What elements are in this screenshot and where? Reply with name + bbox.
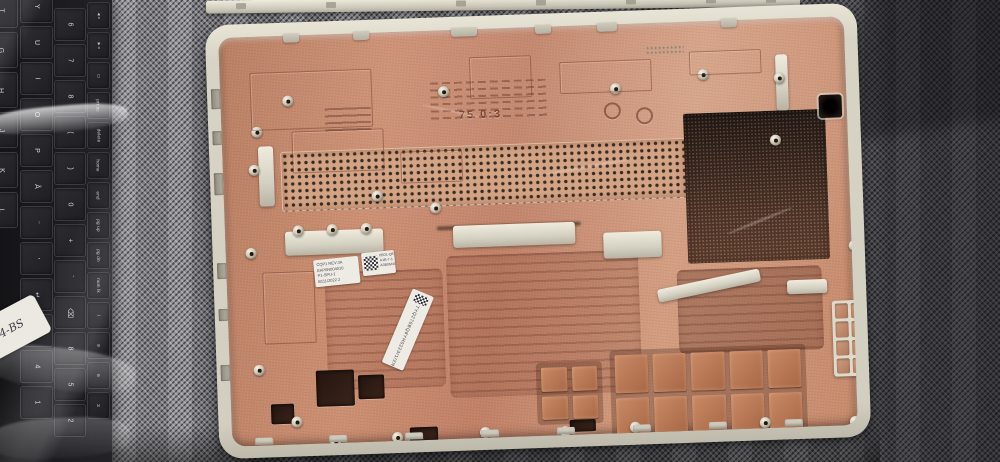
screw-boss (291, 416, 302, 427)
keyboard-key: J (0, 112, 18, 148)
grid-cell (835, 321, 848, 337)
rim-port-slot (212, 131, 221, 145)
key-legend: delete (96, 129, 101, 143)
screw-boss (857, 290, 858, 301)
key-legend: O (33, 112, 40, 117)
laptop-bottom-case: 75 0:3 CQP (205, 3, 872, 459)
rim-port-slot (211, 89, 221, 109)
grid-cell (851, 321, 858, 337)
silver-bracket (787, 279, 827, 294)
keyboard-key: O (20, 98, 53, 131)
keyboard-key: pg up (87, 212, 110, 239)
key-legend: / (96, 315, 101, 316)
screw-boss-mount (850, 416, 858, 427)
keyboard-key: 7 (54, 44, 86, 77)
screw-boss (254, 365, 265, 376)
key-legend: K (0, 168, 4, 173)
key-legend: ⌫ (66, 308, 74, 318)
keyboard-key: ´ (54, 260, 86, 293)
key-legend: ▭ (95, 73, 101, 78)
keyboard-key: G (0, 32, 18, 68)
screw-boss (849, 240, 858, 251)
keyboard-key: 2 (54, 404, 86, 437)
dark-cutout (316, 370, 355, 407)
keyboard-key: ⌫ (54, 296, 86, 329)
key-legend: ( (67, 131, 74, 133)
keyboard-key: I (20, 62, 53, 95)
key-legend: ' (33, 258, 40, 259)
recycle-mark-icon (636, 107, 654, 125)
key-legend: H (0, 87, 5, 92)
rim-clip (481, 429, 499, 437)
grid-cell (851, 339, 857, 355)
molded-rib (400, 150, 463, 184)
strip-notch (536, 0, 546, 6)
strip-notch (766, 0, 776, 3)
keyboard-key: ▭ (87, 62, 110, 89)
key-legend: pg dn (96, 249, 101, 262)
grid-cell (835, 303, 848, 319)
molded-rib (469, 55, 532, 99)
key-legend: ) (67, 167, 74, 169)
key-legend: 0 (67, 203, 74, 207)
key-legend: pg up (96, 219, 101, 232)
screw-boss (245, 248, 256, 259)
key-legend: 4 (33, 365, 40, 369)
keyboard-key: pg dn (87, 242, 110, 269)
keyboard-key: 9 (87, 332, 110, 359)
rim-clip (709, 422, 727, 430)
key-legend: 1 (33, 401, 40, 405)
strip-notch (456, 0, 466, 6)
keyboard-key: K (0, 152, 18, 188)
rim-tab (721, 18, 737, 28)
keyboard-key: ) (54, 152, 86, 185)
strip-notch (326, 2, 336, 8)
grid-cell (850, 303, 858, 319)
key-legend: P (33, 148, 40, 153)
sticker-part-number: CQP1 REV:3A EAP0N004010 P1-SPU-1 B111/20… (313, 256, 361, 288)
keyboard-key: 3 (87, 392, 110, 419)
grid-cell (571, 366, 597, 390)
keyboard-key: 8 (54, 80, 86, 113)
keyboard-key: 6 (87, 362, 110, 389)
rim-clip (785, 419, 803, 427)
grid-cell (572, 395, 598, 419)
rim-clip (557, 427, 575, 435)
rim-clip (633, 424, 651, 432)
keyboard-key: 6 (54, 8, 86, 41)
key-legend: 5 (67, 383, 74, 387)
keyboard-key: ( (54, 116, 86, 149)
key-legend: G (0, 47, 4, 52)
strip-notch (706, 0, 716, 4)
strip-notch (626, 0, 636, 4)
key-legend: home (96, 159, 101, 171)
key-legend: prt sc (96, 99, 101, 111)
keyboard-key: ' (20, 242, 53, 275)
keyboard-key: 0 (54, 188, 86, 221)
key-legend: ◄» (96, 12, 101, 20)
keyboard-key: U (20, 26, 53, 59)
keyboard-key: delete (87, 122, 110, 149)
key-legend: Y (33, 4, 40, 9)
silver-bracket (603, 231, 662, 259)
strip-notch (236, 3, 246, 9)
qr-code-icon (363, 256, 378, 271)
grid-cell (653, 353, 687, 392)
molded-rib (291, 128, 384, 173)
case-interior-copper-coating: 75 0:3 CQP (218, 16, 858, 447)
keyboard-key: end (87, 182, 110, 209)
key-legend: 8 (67, 347, 74, 351)
keyboard-key: ¨ (20, 206, 53, 239)
rim-port-slot (220, 365, 230, 381)
key-legend: 3 (96, 404, 101, 407)
molded-rib (689, 49, 762, 75)
keyboard-key: Å (20, 170, 53, 203)
molded-rib (249, 69, 373, 131)
grid-cell (729, 350, 763, 389)
rim-port-slot (214, 173, 224, 195)
grid-cell (691, 352, 725, 391)
rim-tab (535, 24, 551, 34)
bracket-knob (361, 223, 372, 234)
key-legend: J (0, 128, 5, 132)
rim-vent-dots (646, 45, 684, 55)
photo-scene: TGHJKLYUIOPÅ¨'↵741678()0+´⌫852◄»►»▭prt s… (0, 0, 1000, 462)
rim-port-slot (219, 309, 228, 321)
keyboard-key: home (87, 152, 110, 179)
rim-tab (353, 31, 369, 41)
recycle-mark-icon (604, 102, 622, 120)
keyboard-key: H (0, 72, 18, 108)
grid-cell (542, 396, 568, 420)
keyboard-key: num lk (87, 272, 110, 299)
key-legend: 7 (67, 59, 74, 63)
fan-mesh-region (683, 109, 830, 264)
grid-cell (541, 367, 567, 391)
key-legend: ¨ (33, 221, 40, 223)
dc-jack-cutout (818, 94, 842, 118)
key-legend: num lk (96, 278, 101, 293)
rim-clip (405, 432, 423, 440)
keyboard-key: Y (20, 0, 53, 23)
silver-latch-block (258, 146, 275, 206)
rim-clip (255, 437, 273, 445)
key-legend: ´ (67, 275, 74, 277)
key-legend: ►» (96, 42, 101, 50)
key-legend: U (33, 40, 40, 45)
keyboard-key: ►» (87, 32, 110, 59)
screw-boss-mount (392, 432, 403, 443)
keyboard-key: 5 (54, 368, 86, 401)
rim-tab (283, 33, 299, 43)
molded-rib (559, 59, 652, 94)
key-legend: end (96, 191, 101, 199)
keyboard-key: T (0, 0, 18, 28)
key-legend: L (0, 208, 5, 212)
keyboard-key: / (87, 302, 110, 329)
rib-cluster (536, 361, 604, 425)
bracket-knob (327, 224, 338, 235)
key-legend: Å (33, 184, 40, 189)
dark-cutout (358, 374, 385, 399)
bracket-knob (293, 225, 304, 236)
key-legend: T (0, 8, 5, 12)
grid-cell (767, 349, 801, 388)
keyboard-key: prt sc (87, 92, 110, 119)
lattice-grid-block (832, 300, 858, 377)
keyboard-key: 4 (20, 350, 53, 383)
screw-boss (430, 202, 441, 213)
keyboard-key: ◄» (87, 2, 110, 29)
key-legend: 6 (96, 374, 101, 377)
key-legend: 9 (96, 344, 101, 347)
grid-cell (614, 354, 648, 393)
rim-clip (329, 435, 347, 443)
sticker-qr-label: 0B01-Q87-3 A1B-7-1 A3B0M4Q1 (361, 250, 396, 276)
keyboard-key: P (20, 134, 53, 167)
keyboard-key: 1 (20, 386, 53, 419)
key-legend: + (67, 238, 74, 242)
key-legend: 2 (67, 419, 74, 423)
laptop-keyboard-in-plastic: TGHJKLYUIOPÅ¨'↵741678()0+´⌫852◄»►»▭prt s… (0, 0, 112, 462)
rim-tab (451, 27, 477, 37)
rim-tab (597, 22, 617, 32)
grid-cell (837, 358, 850, 374)
grid-cell (852, 357, 858, 373)
key-legend: 8 (67, 95, 74, 99)
keyboard-key: 8 (54, 332, 86, 365)
silver-bracket (453, 222, 576, 248)
molded-rib (262, 271, 316, 345)
grid-cell (836, 340, 849, 356)
handwritten-label-text: 14-BS (0, 316, 27, 343)
key-legend: I (33, 78, 40, 80)
grid-cell (654, 395, 688, 434)
keyboard-key: L (0, 192, 18, 228)
rim-port-slot (217, 263, 227, 279)
keyboard-key: + (54, 224, 86, 257)
key-legend: 6 (67, 23, 74, 27)
